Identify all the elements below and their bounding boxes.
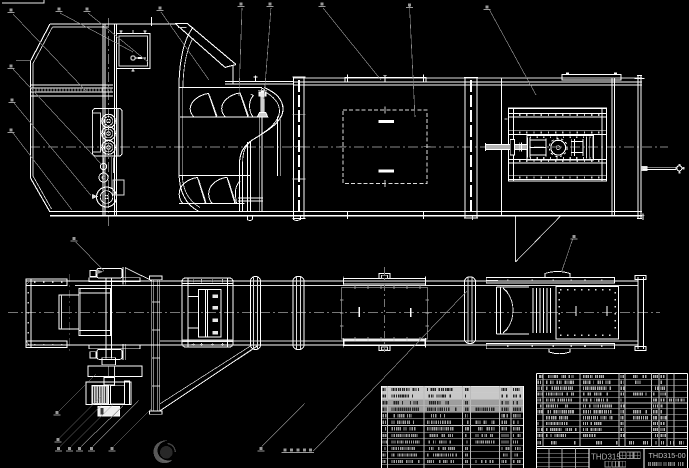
svg-text:THD315: THD315 bbox=[591, 453, 621, 462]
svg-text:THD315-00: THD315-00 bbox=[649, 451, 686, 460]
